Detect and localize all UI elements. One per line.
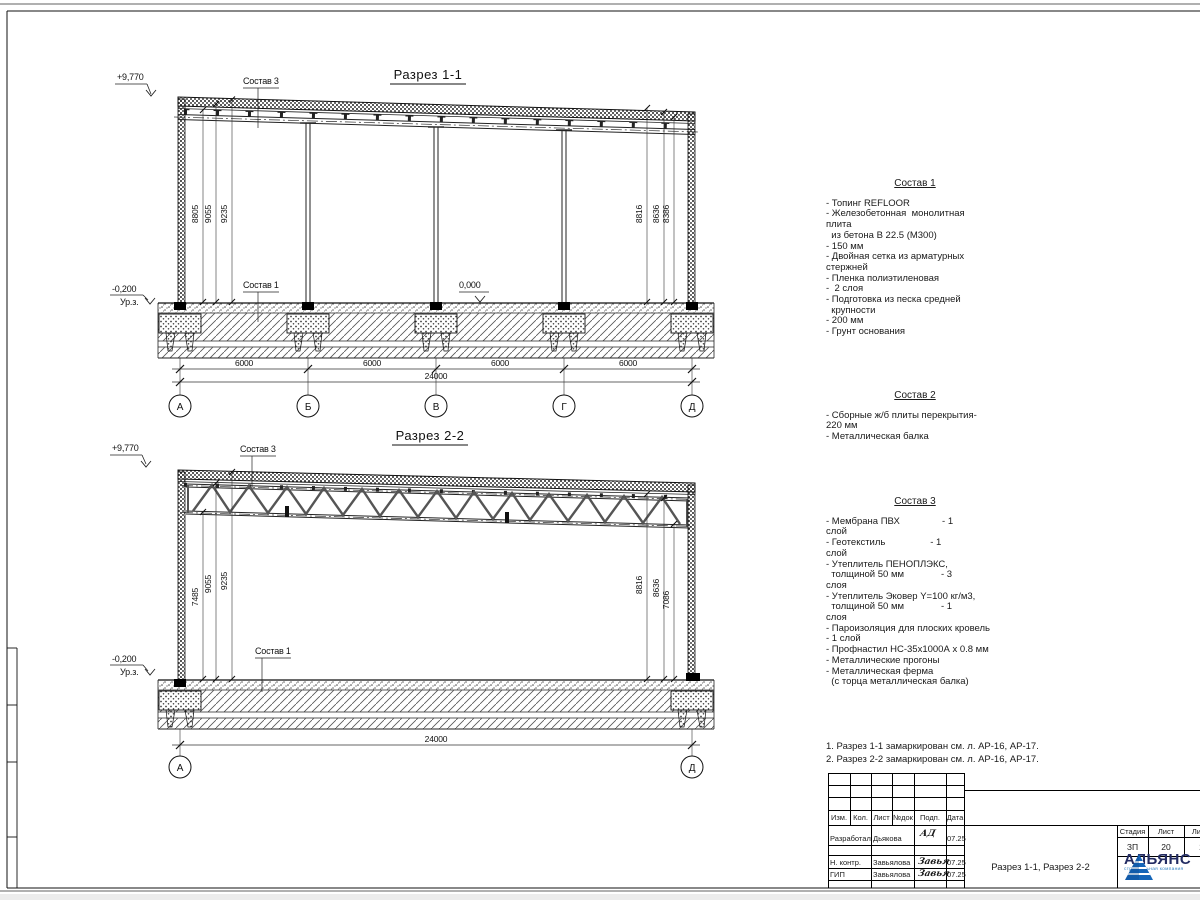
axis-label: Б xyxy=(305,402,312,413)
tb-col-kol: Кол. xyxy=(850,813,871,822)
floor-slab xyxy=(158,680,714,690)
tb-role: Разработал xyxy=(830,834,871,843)
callout-sostav3: Состав 3 xyxy=(240,444,276,454)
dim-label: 7485 xyxy=(190,587,200,606)
tb-name: Завьялова xyxy=(873,870,910,879)
dim-label: 8636 xyxy=(651,204,661,223)
section-2-2: Разрез 2-2 xyxy=(110,428,714,778)
bay-dim: 6000 xyxy=(619,358,638,368)
callout-sostav1: Состав 1 xyxy=(255,646,291,656)
callout-sostav3: Состав 3 xyxy=(243,76,279,86)
total-dim: 24000 xyxy=(425,371,448,381)
tb-col-data: Дата xyxy=(946,813,964,822)
wall-right xyxy=(688,485,695,680)
axis-label: Г xyxy=(561,402,567,413)
dim-label: 9235 xyxy=(219,571,229,590)
dim-label: 8805 xyxy=(190,204,200,223)
logo-triangle-icon xyxy=(1124,853,1154,881)
axis-label: Д xyxy=(689,402,696,413)
axis-label: В xyxy=(433,402,440,413)
dim-label: 7086 xyxy=(661,590,671,609)
wall-left xyxy=(178,472,185,680)
tb-name: Дьякова xyxy=(873,834,902,843)
dim-label: 9235 xyxy=(219,204,229,223)
axis-label: Д xyxy=(689,763,696,774)
tb-col-podp: Подп. xyxy=(914,813,946,822)
composition-1-block: Состав 1 - Топинг REFLOOR - Железобетонн… xyxy=(826,179,1004,338)
composition-heading: Состав 2 xyxy=(826,391,1004,402)
dim-label: 8816 xyxy=(634,575,644,594)
ground-level-label: Ур.з. xyxy=(120,667,138,677)
tb-signature: Завья xyxy=(917,857,950,867)
callout-sostav1: Состав 1 xyxy=(243,280,279,290)
columns xyxy=(300,123,572,303)
composition-heading: Состав 3 xyxy=(826,497,1004,508)
section-1-1: Разрез 1-1 xyxy=(110,67,714,417)
tb-signature: Завья xyxy=(917,869,950,879)
tb-date: 07.25 xyxy=(947,870,966,879)
wall-right xyxy=(688,114,695,303)
notes-block: 1. Разрез 1-1 замаркирован см. л. АР-16,… xyxy=(826,740,1186,766)
dim-label: 9055 xyxy=(203,574,213,593)
section1-title: Разрез 1-1 xyxy=(394,67,463,82)
tb-date: 07.25 xyxy=(947,834,966,843)
axis-label: А xyxy=(177,763,184,774)
tb-sheet-label: Лист xyxy=(1148,827,1184,836)
company-logo: АЛЬЯНС строительная компания xyxy=(1124,853,1191,872)
total-dim: 24000 xyxy=(425,734,448,744)
wall-left xyxy=(178,99,185,303)
elevation-top: +9,770 xyxy=(117,72,144,82)
bay-dim: 6000 xyxy=(235,358,254,368)
dim-label: 9055 xyxy=(203,204,213,223)
composition-3-block: Состав 3 - Мембрана ПВХ - 1 слой - Геоте… xyxy=(826,497,1004,688)
dim-label: 8636 xyxy=(651,578,661,597)
roof-composition-band xyxy=(178,97,695,121)
note-line: 1. Разрез 1-1 замаркирован см. л. АР-16,… xyxy=(826,740,1186,753)
elevation-minus: -0,200 xyxy=(112,284,137,294)
composition-2-block: Состав 2 - Сборные ж/б плиты перекрытия-… xyxy=(826,391,1004,443)
tb-role: Н. контр. xyxy=(830,858,861,867)
bay-dim: 6000 xyxy=(363,358,382,368)
tb-stage-label: Стадия xyxy=(1117,827,1148,836)
axis-markers xyxy=(169,756,703,778)
axis-label: А xyxy=(177,402,184,413)
tb-date: 07.25 xyxy=(947,858,966,867)
tb-col-list: Лист xyxy=(871,813,892,822)
section2-title: Разрез 2-2 xyxy=(396,428,465,443)
tb-role: ГИП xyxy=(830,870,845,879)
tb-doc-title: Разрез 1-1, Разрез 2-2 xyxy=(964,862,1117,873)
ground-level-label: Ур.з. xyxy=(120,297,138,307)
drawing-sheet: Разрез 1-1 xyxy=(0,0,1200,900)
roof-truss xyxy=(182,484,694,528)
bay-dim: 6000 xyxy=(491,358,510,368)
soil-hatch xyxy=(158,690,714,712)
tb-signature: АД xyxy=(919,829,936,839)
tb-sheets-label: Листов xyxy=(1184,827,1200,836)
tb-col-ndoc: №док xyxy=(892,813,914,822)
tb-name: Завьялова xyxy=(873,858,910,867)
elevation-zero: 0,000 xyxy=(459,280,481,290)
elevation-top: +9,770 xyxy=(112,443,139,453)
elevation-minus: -0,200 xyxy=(112,654,137,664)
dim-label: 8386 xyxy=(661,204,671,223)
composition-heading: Состав 1 xyxy=(826,179,1004,190)
tb-col-izm: Изм. xyxy=(828,813,850,822)
dim-label: 8816 xyxy=(634,204,644,223)
note-line: 2. Разрез 2-2 замаркирован см. л. АР-16,… xyxy=(826,753,1186,766)
